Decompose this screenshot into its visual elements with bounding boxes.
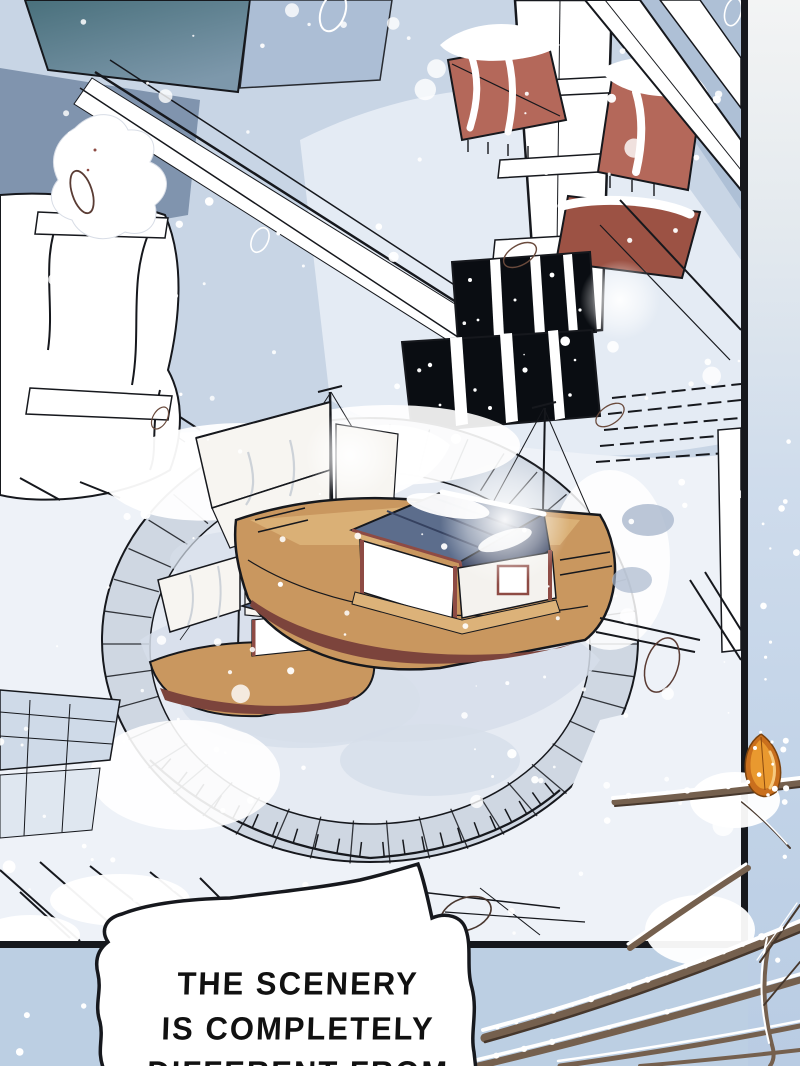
- comic-page: THE SCENERY IS COMPLETELY DIFFERENT FROM: [0, 0, 800, 1066]
- speech-bubble-layer: [0, 0, 800, 1066]
- dialogue-line-2: IS COMPLETELY: [111, 1012, 484, 1044]
- dialogue-line-3: DIFFERENT FROM: [111, 1056, 484, 1066]
- dialogue-line-1: THE SCENERY: [111, 967, 484, 999]
